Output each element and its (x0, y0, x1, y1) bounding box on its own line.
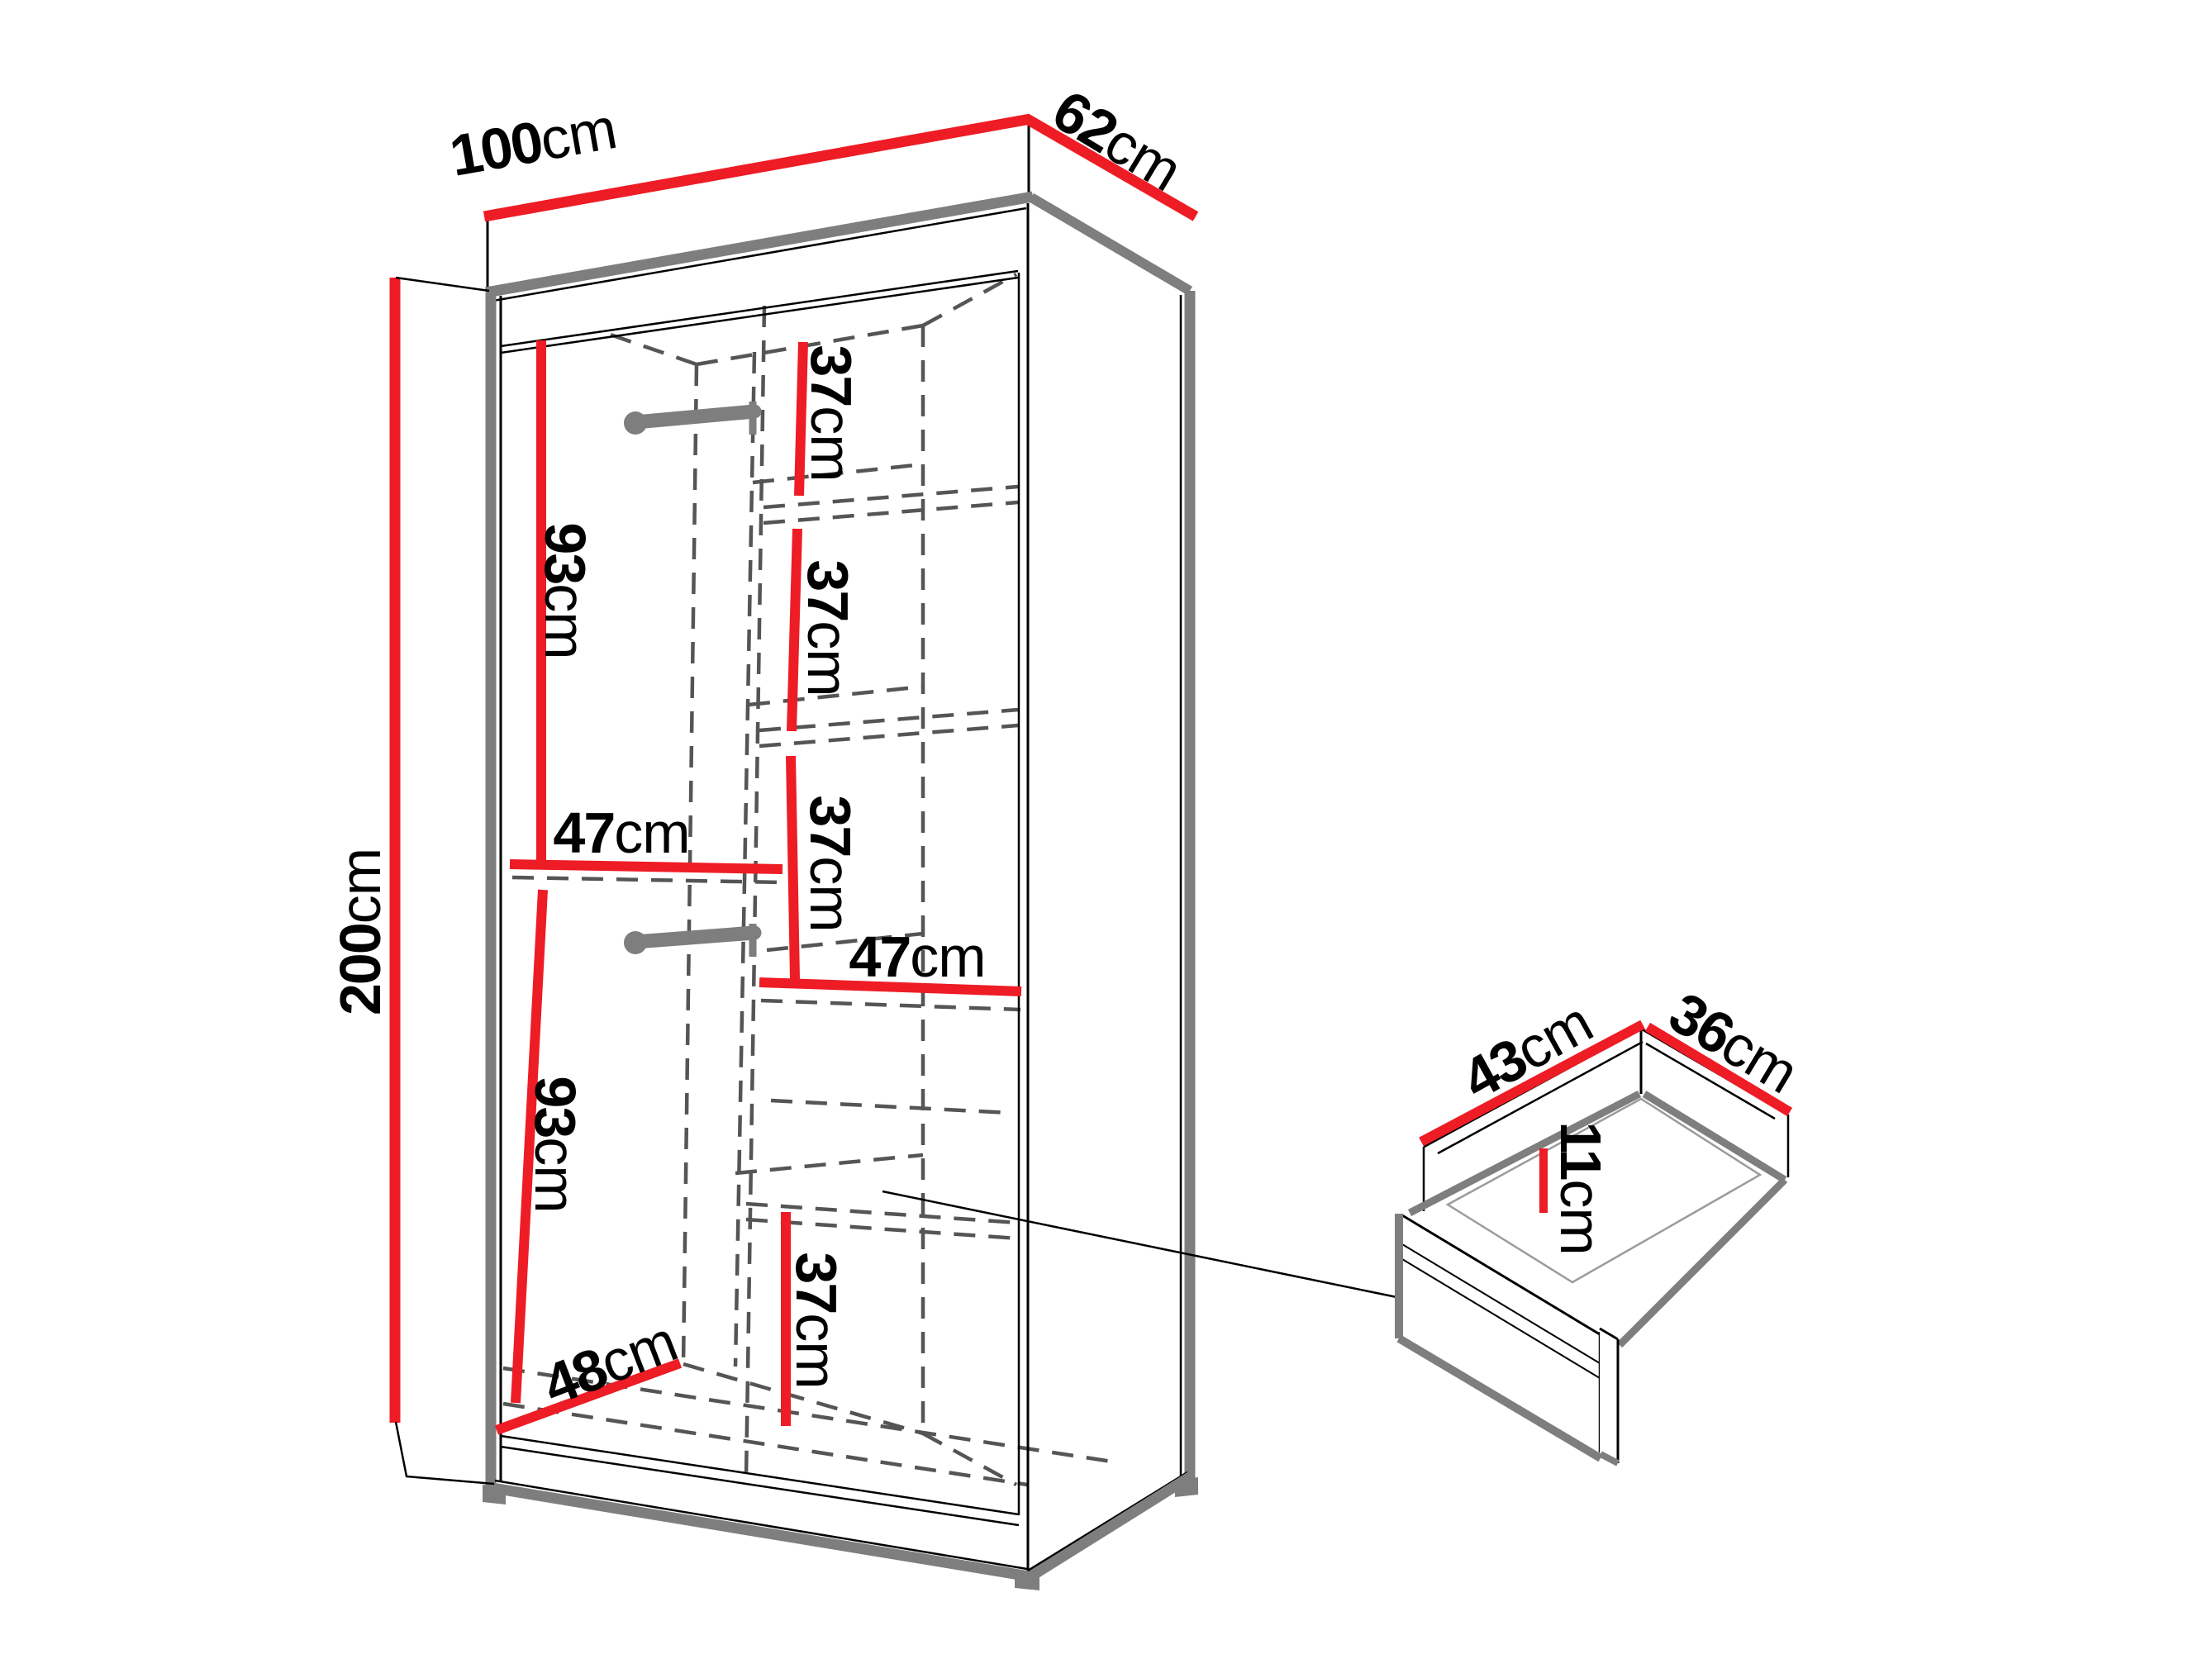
leader-height-bottom (396, 1422, 494, 1484)
label-drawer-width-36cm: 36cm (1658, 980, 1809, 1105)
foot-back-right (1175, 1477, 1198, 1497)
side-panel-face (1029, 196, 1187, 1576)
drawer-right-front-bottom (1620, 1180, 1785, 1345)
drawer-front-cap (1600, 1329, 1618, 1463)
label-right-shelf-47cm: 47cm (849, 925, 985, 989)
leader-height-top (396, 278, 489, 291)
label-height-200cm: 200cm (328, 849, 392, 1015)
label-shelf-gap3-37cm: 37cm (798, 795, 863, 931)
label-drawer-depth-43cm: 43cm (1452, 990, 1602, 1112)
label-left-shelf-47cm: 47cm (553, 801, 689, 865)
dim-line-shelf-gap-3 (791, 756, 795, 979)
label-shelf-gap1-37cm: 37cm (799, 345, 863, 481)
rail-lower-rod (635, 933, 754, 942)
label-drawer-height-11cm: 11cm (1548, 1121, 1613, 1254)
foot-front-right (1015, 1571, 1039, 1590)
wardrobe-dimension-diagram: 100cm 62cm 200cm 93cm 93cm 47cm 47cm 37c… (0, 0, 2212, 1659)
label-width-100cm: 100cm (445, 96, 621, 188)
foot-left (483, 1485, 506, 1505)
label-shelf-gap2-37cm: 37cm (796, 559, 860, 696)
label-lower-93cm: 93cm (523, 1076, 587, 1212)
drawer-right-wall-bottom (1644, 1094, 1785, 1180)
label-bottom-37cm: 37cm (784, 1252, 849, 1388)
label-upper-93cm: 93cm (533, 522, 597, 658)
